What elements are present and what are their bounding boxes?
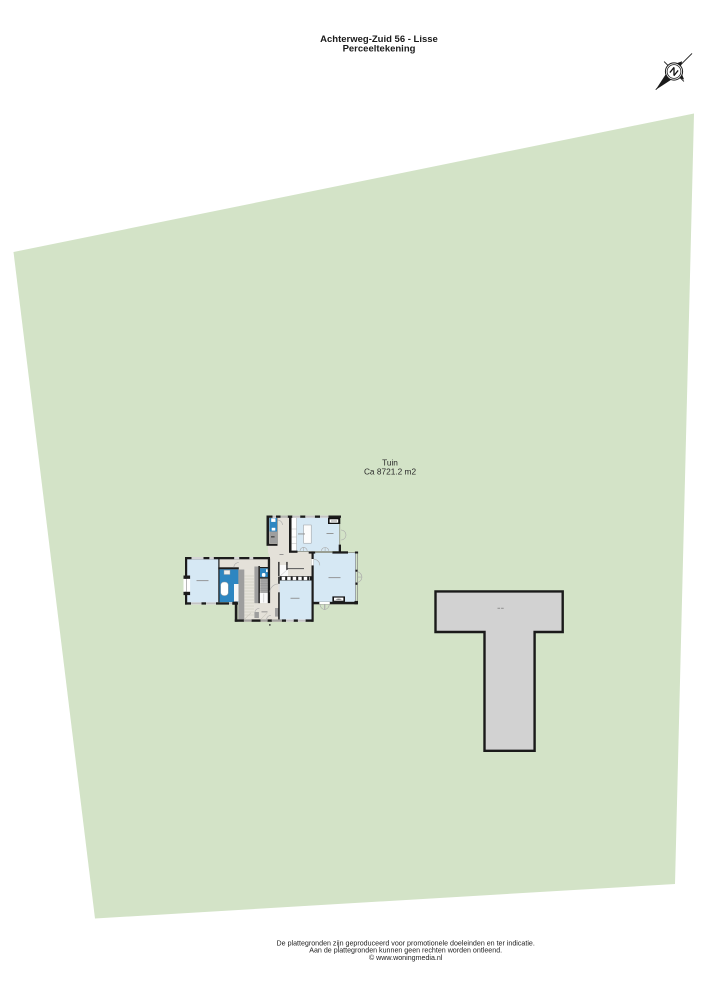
svg-text:Perceeltekening: Perceeltekening — [343, 44, 416, 55]
svg-text:© www.woningmedia.nl: © www.woningmedia.nl — [369, 954, 443, 962]
svg-text:Ca 8721.2 m2: Ca 8721.2 m2 — [364, 467, 417, 477]
